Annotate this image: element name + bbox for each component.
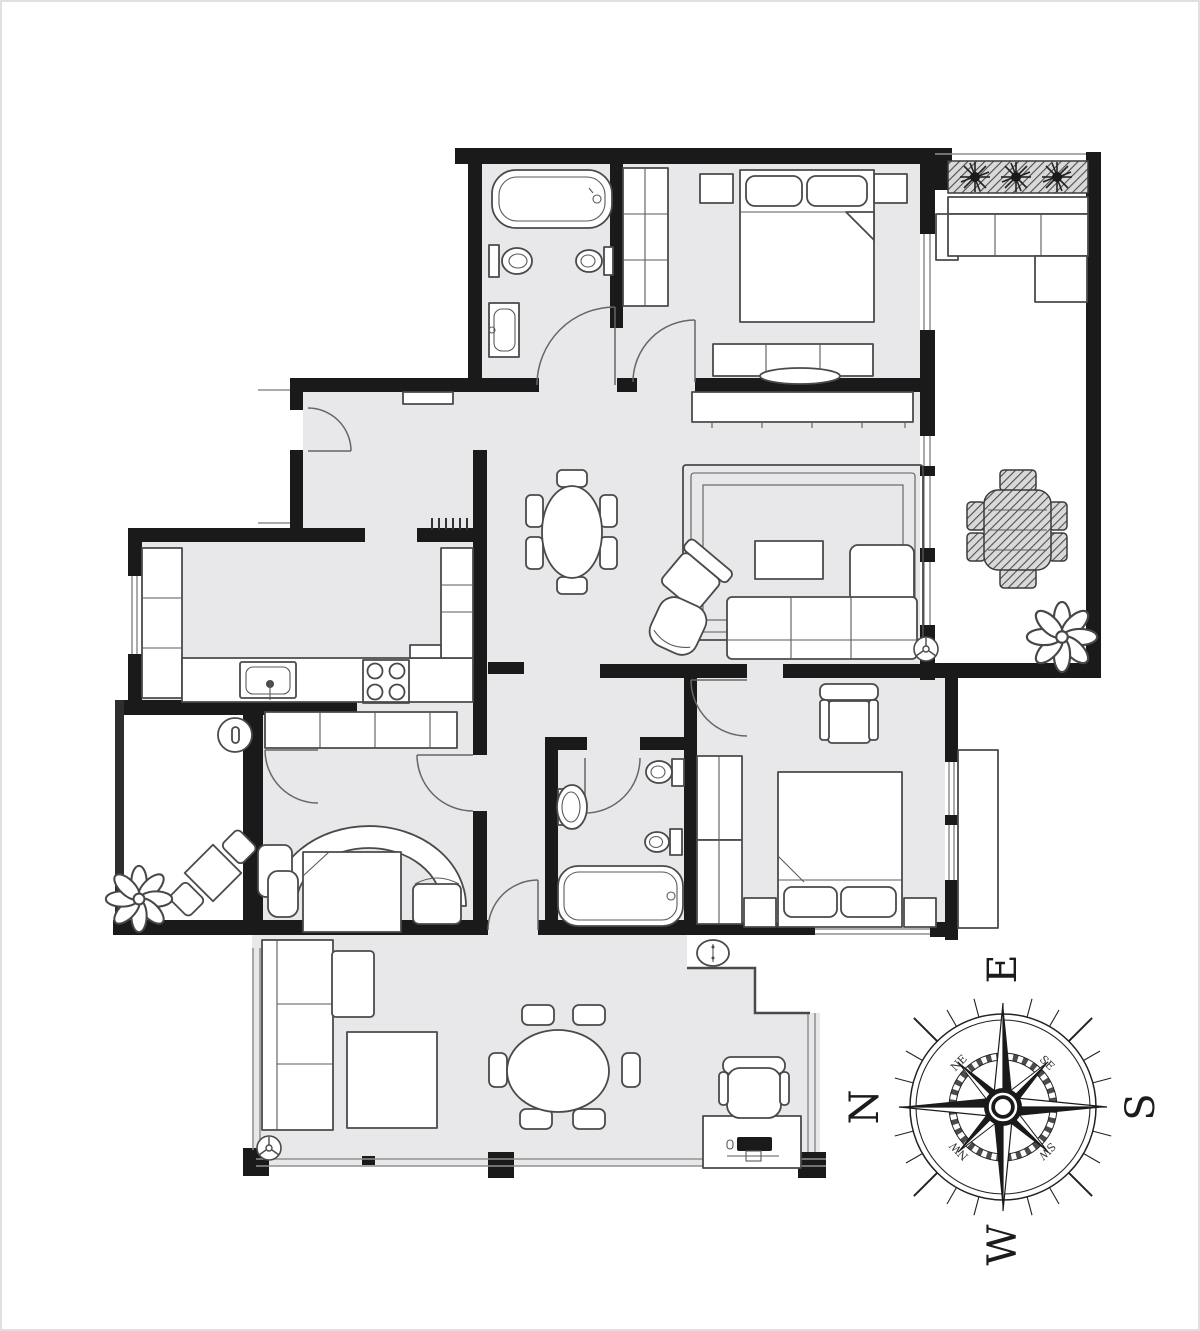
nightstand-icon [700,174,733,203]
office-chair-icon [719,1057,789,1118]
wardrobe-strip-icon [697,756,742,924]
balcony-west [106,718,262,932]
sink-icon [557,785,587,829]
bathtub-icon [492,170,612,228]
small-balcony-outline [958,750,998,928]
outdoor-dining-set-icon [967,470,1067,588]
bathtub-icon [558,866,683,926]
toilet-icon [489,245,532,277]
toilet-icon [646,759,684,786]
bidet-icon [645,829,682,855]
nightstand-icon [904,898,936,927]
closet-row-icon [265,712,457,748]
ceiling-fan-icon [257,1136,281,1160]
boiler-icon [218,718,252,752]
sink-icon [489,303,519,357]
compass-west-label: W [980,1224,1026,1265]
wardrobe-icon [623,168,668,306]
ceiling-fan-icon [914,637,938,661]
compass-east-label: E [980,954,1026,983]
outdoor-sofa-icon [948,197,1088,302]
window-kitchen-west [128,576,142,654]
shelf-icon [403,392,453,404]
bidet-icon [576,247,613,275]
plant-icon [106,866,172,932]
double-bed-icon [778,772,902,927]
terrace-east [936,161,1097,672]
compass-north-label: N [842,1090,888,1125]
armchair-icon [413,878,461,924]
washing-machine-icon [697,940,729,966]
plant-icon [1027,602,1097,672]
desk-icon [703,1116,801,1168]
laptop-icon [737,1137,772,1151]
nightstand-icon [744,898,776,927]
coffee-table-icon [347,1032,437,1128]
armchair-icon [820,684,878,743]
floor-plan-page: N E S W NE SE SW NW [0,0,1200,1331]
double-bed-icon [740,170,874,322]
window-hall-west-sills [258,390,290,523]
planter-icon [948,161,1088,193]
compass-south-label: S [1118,1093,1164,1120]
coffee-table-icon [755,541,823,579]
kitchen-cabinets-icon [142,548,182,698]
sideboard-icon [692,392,913,428]
nightstand-icon [874,174,907,203]
compass-rose-icon: N E S W NE SE SW NW [842,954,1164,1265]
kitchen-sink-icon [240,662,296,700]
floor-plan-drawing: N E S W NE SE SW NW [0,0,1200,1331]
